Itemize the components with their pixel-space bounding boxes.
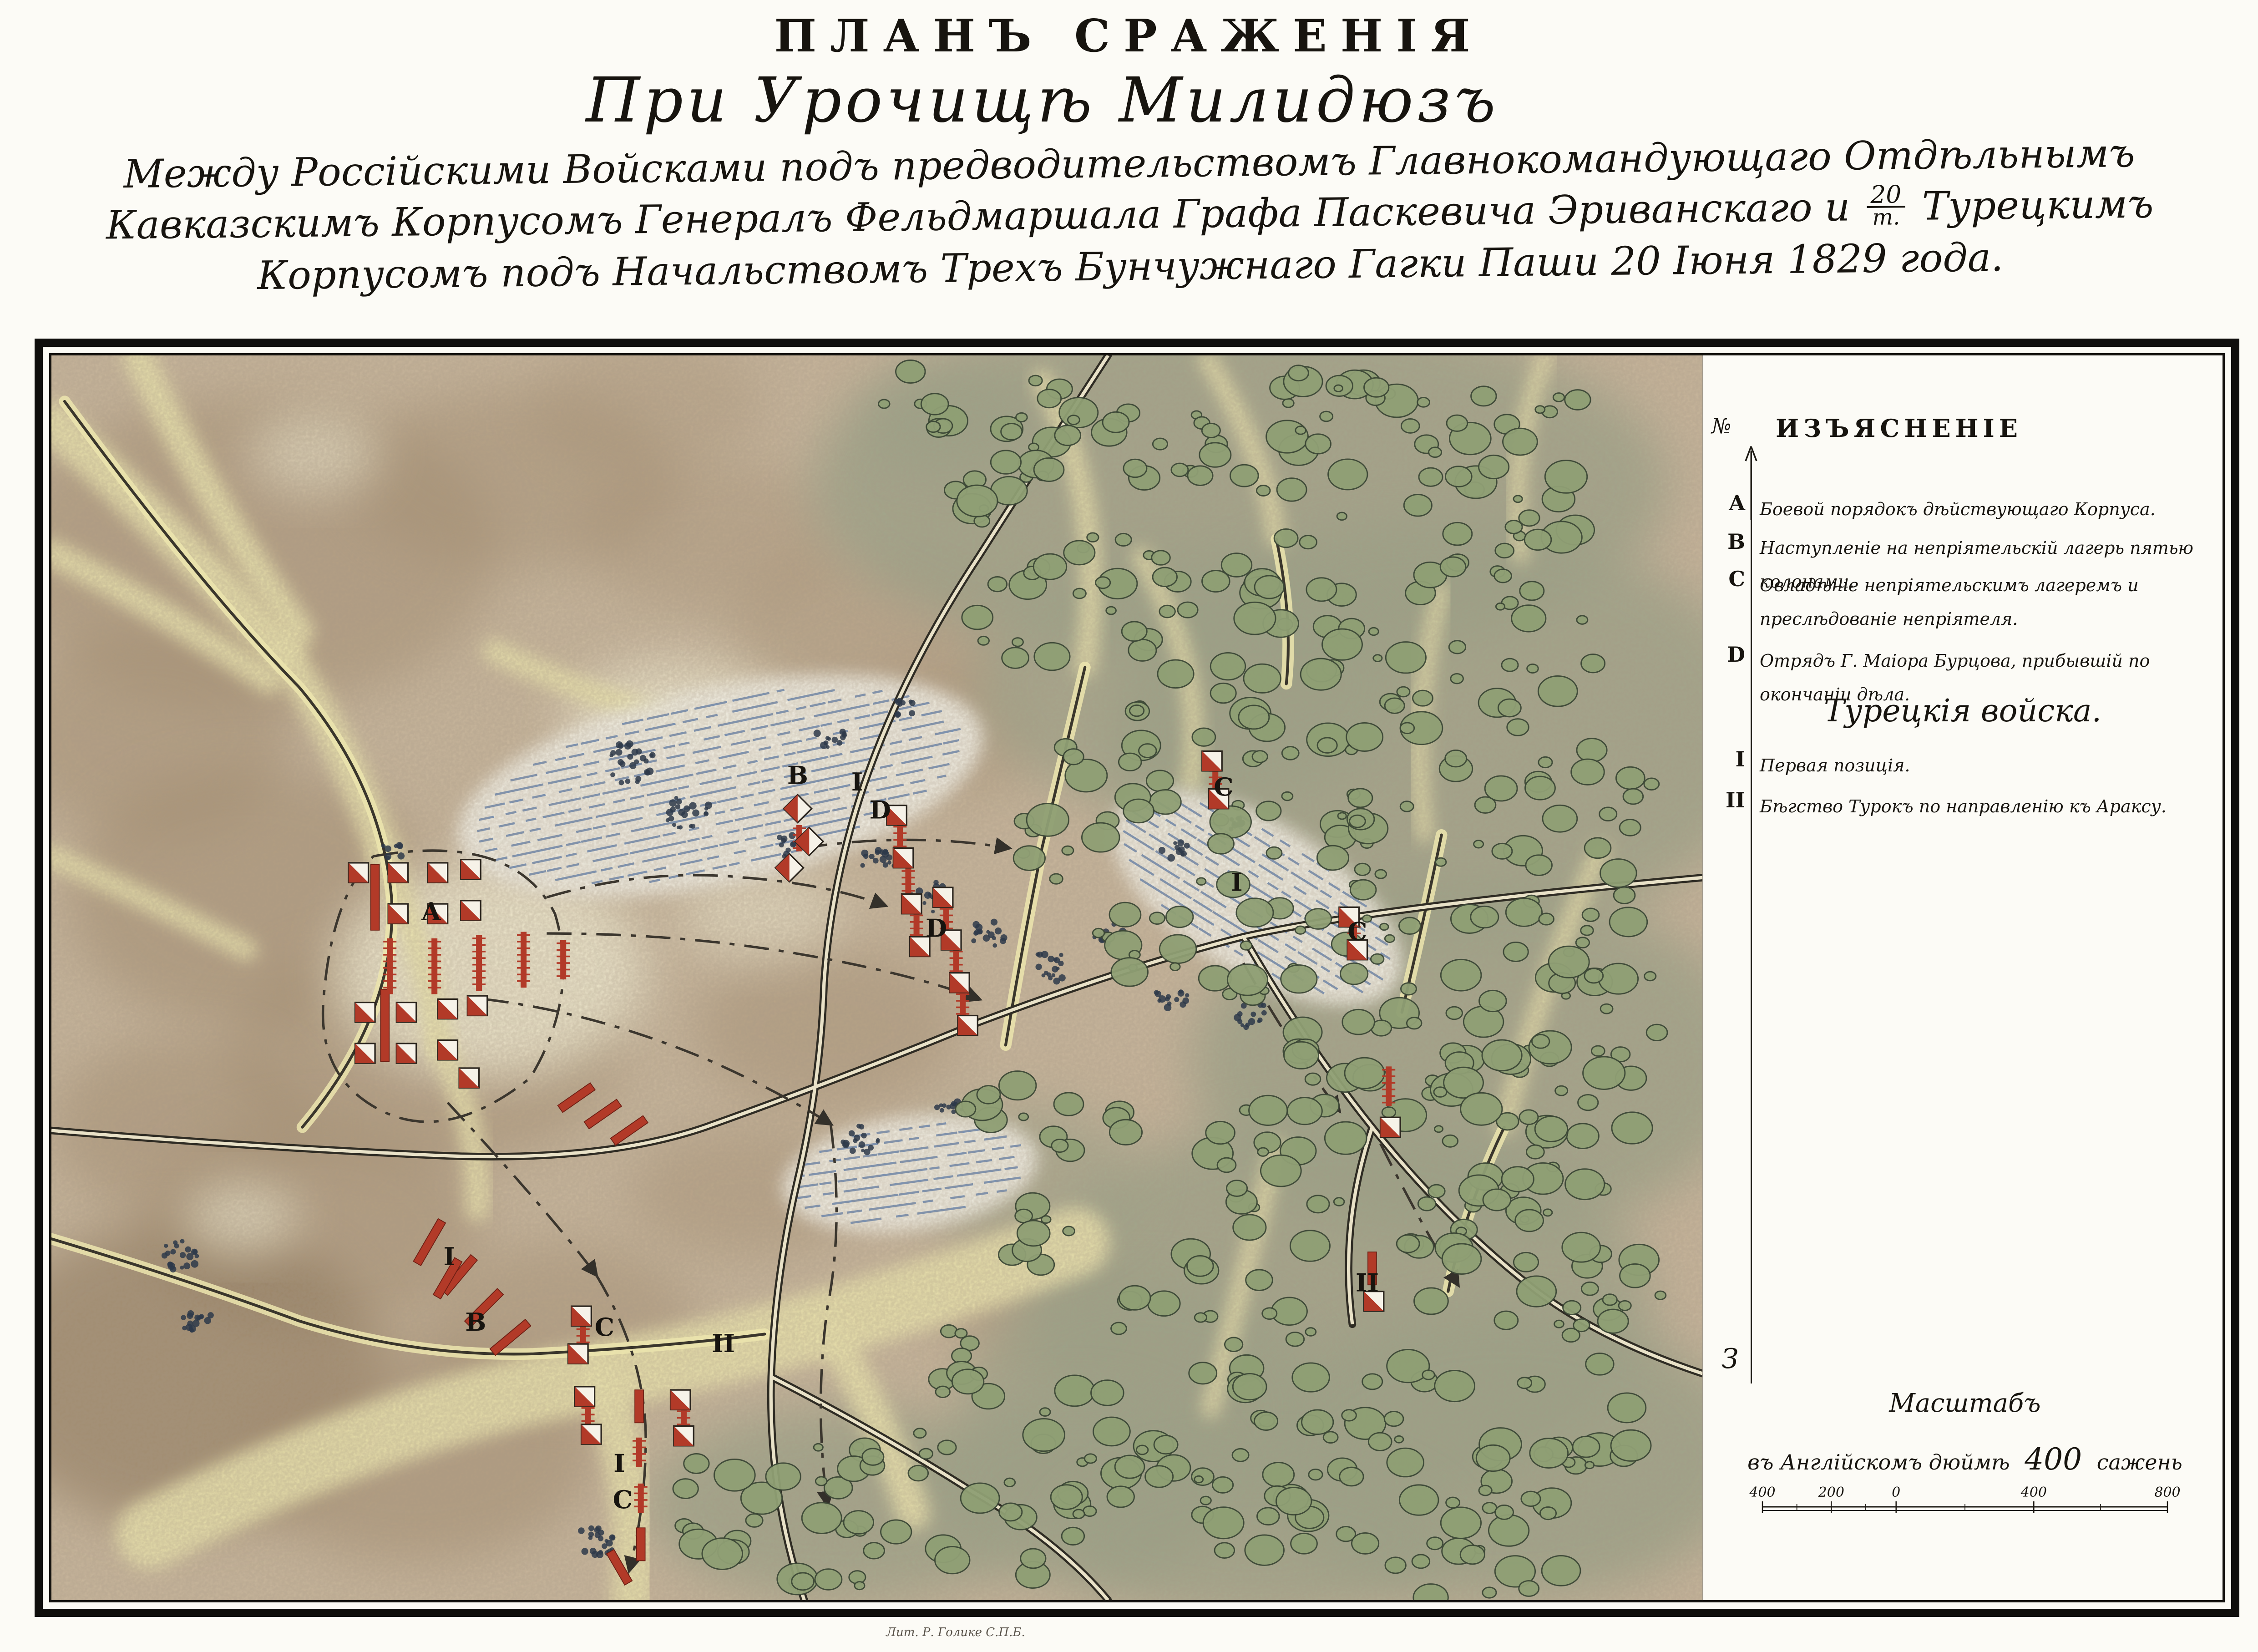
legend-item-key: A: [1703, 491, 1745, 515]
map-label-C: C: [613, 1485, 633, 1514]
fraction-denominator: т.: [1867, 208, 1905, 228]
scale-caption-value: 400: [2025, 1442, 2082, 1477]
scale-title: Масштабъ: [1735, 1388, 2195, 1418]
page-title: ПЛАНЪ СРАЖЕНІЯ: [0, 10, 2258, 62]
map-label-I: I: [1231, 867, 1242, 897]
page-subtitle: При Урочищѣ Милидюзъ: [0, 65, 2172, 137]
map-label-C: C: [595, 1312, 614, 1342]
scale-bar: 4002000400800: [1749, 1481, 2181, 1525]
scale-bar-label: 0: [1892, 1485, 1900, 1500]
scale-bar-label: 400: [2020, 1485, 2047, 1500]
map-label-I: I: [613, 1449, 625, 1478]
map-label-C: C: [1214, 772, 1233, 801]
battle-map: ABIDDCICIBCIIIIIC: [51, 355, 1702, 1600]
map-label-II: II: [1356, 1268, 1379, 1297]
scale-block: Масштабъ въ Англійскомъ дюймѣ 400 сажень…: [1735, 1388, 2195, 1527]
scale-caption-post: сажень: [2097, 1450, 2182, 1475]
map-frame-inner: ABIDDCICIBCIIIIIC № ИЗЪЯСНЕНІЕ AБоевой п…: [49, 353, 2225, 1602]
twenty-thousand-fraction: 20т.: [1867, 184, 1905, 228]
scale-bar-label: 200: [1818, 1485, 1844, 1500]
map-label-B: B: [787, 761, 808, 790]
map-label-D: D: [926, 913, 947, 943]
legend-item-key: C: [1703, 567, 1745, 591]
lithographer-imprint: Лит. Р. Голике С.П.Б.: [796, 1626, 1115, 1639]
scale-caption: въ Англійскомъ дюймѣ 400 сажень: [1735, 1442, 2195, 1477]
battle-plan-page: ПЛАНЪ СРАЖЕНІЯ При Урочищѣ Милидюзъ Межд…: [0, 0, 2258, 1652]
scale-bar-label: 800: [2154, 1485, 2180, 1500]
legend-subheader: Турецкія войска.: [1758, 693, 2167, 729]
legend-panel: № ИЗЪЯСНЕНІЕ AБоевой порядокъ дѣйствующа…: [1702, 355, 2223, 1600]
scale-bar-label: 400: [1749, 1485, 1775, 1500]
title-line-4-post: Турецкимъ: [1922, 181, 2154, 229]
legend-item-text: Боевой порядокъ дѣйствующаго Корпуса.: [1760, 492, 2215, 526]
map-label-D: D: [870, 796, 891, 825]
map-label-A: A: [421, 897, 441, 926]
scale-caption-pre: въ Англійскомъ дюймѣ: [1747, 1450, 2010, 1475]
north-label: №: [1711, 414, 1731, 438]
legend-rule: [1751, 451, 1752, 1383]
map-label-C: C: [1347, 917, 1367, 946]
legend-item-key: D: [1703, 642, 1745, 667]
legend-header: ИЗЪЯСНЕНІЕ: [1772, 414, 2026, 443]
map-label-I: I: [851, 767, 863, 796]
legend-item-key: II: [1703, 788, 1745, 812]
map-frame: ABIDDCICIBCIIIIIC № ИЗЪЯСНЕНІЕ AБоевой п…: [35, 339, 2239, 1617]
map-label-I: I: [444, 1242, 455, 1271]
map-label-II: II: [712, 1329, 735, 1358]
legend-item-text: Овладѣніе непріятельскимъ лагеремъ и пре…: [1760, 568, 2215, 636]
legend-item-key: I: [1703, 747, 1745, 771]
legend-item-key: B: [1703, 529, 1745, 554]
map-label-B: B: [465, 1307, 486, 1337]
legend-item-text: Первая позиція.: [1760, 749, 2215, 782]
legend-item-text: Бѣгство Турокъ по направленію къ Араксу.: [1760, 790, 2215, 823]
sheet-mark: З: [1721, 1343, 1738, 1375]
